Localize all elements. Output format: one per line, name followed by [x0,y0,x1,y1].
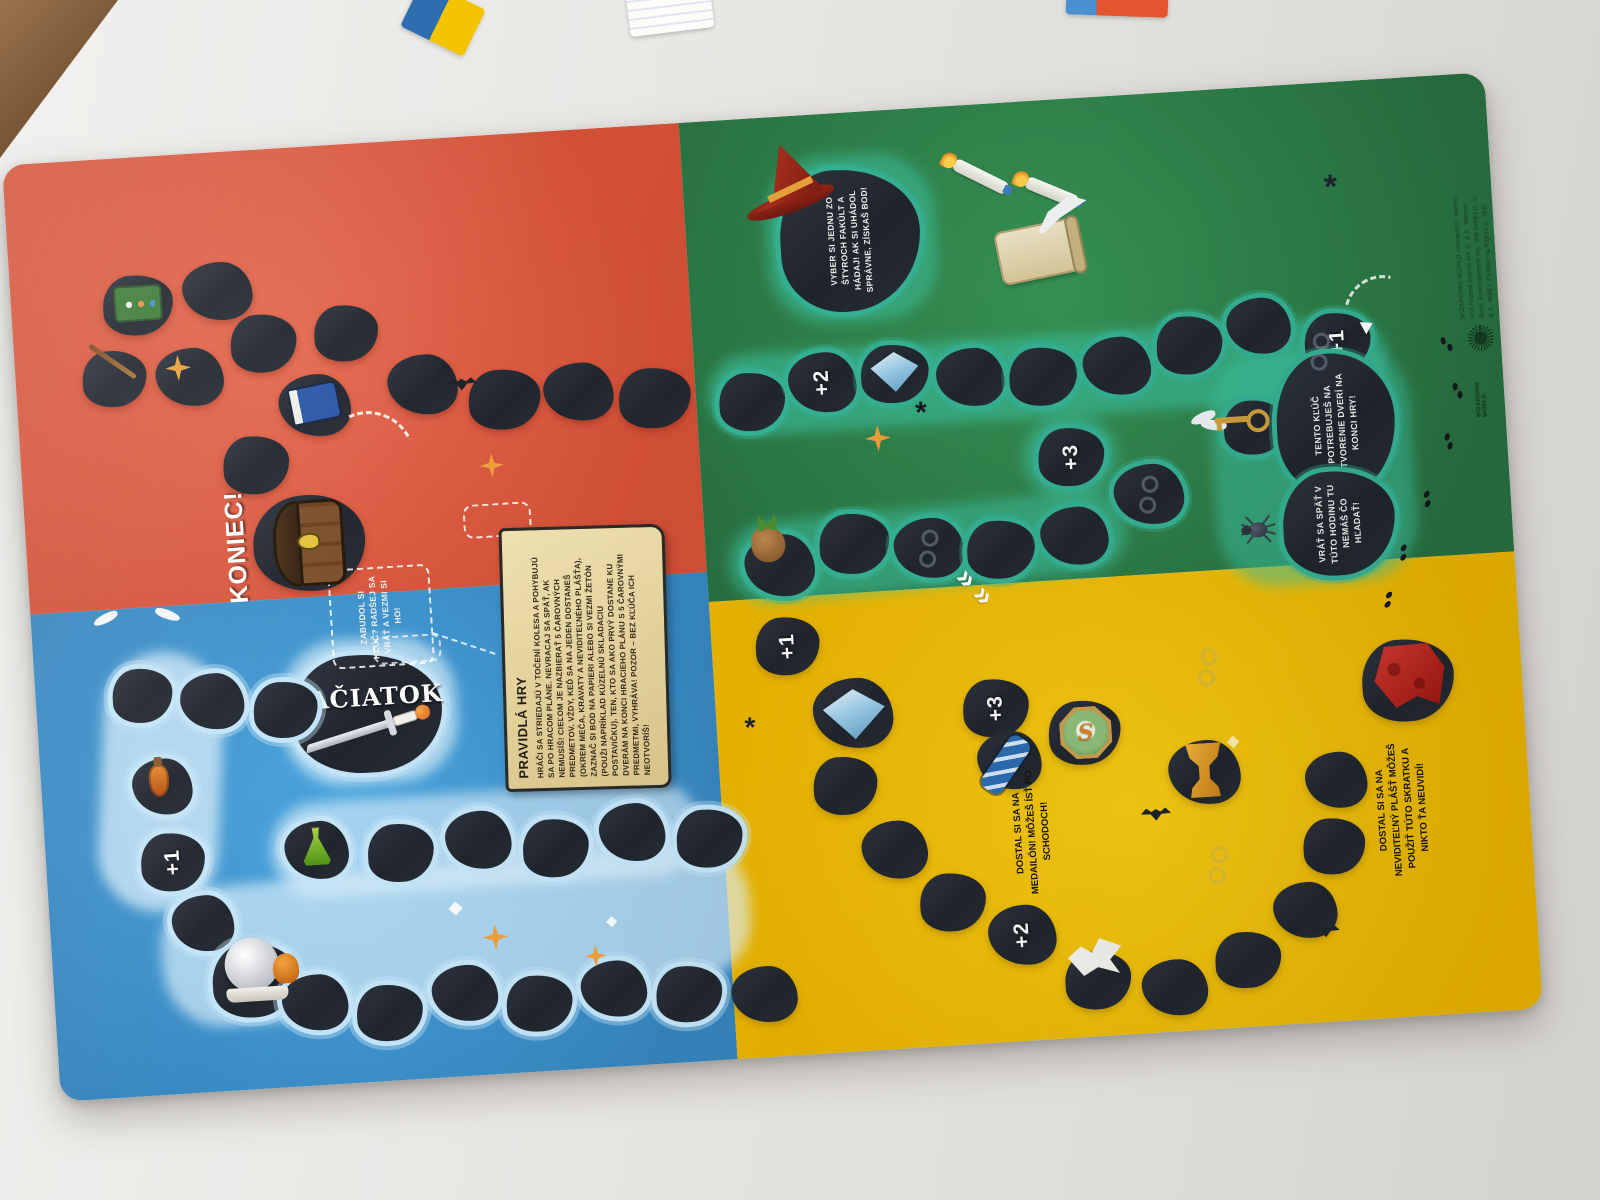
mandrake-leaf [752,513,770,533]
spider-head [1241,526,1252,536]
card-stack [400,0,486,57]
quadrant-green [679,72,1515,602]
golden-snitch-icon [108,608,166,649]
spider-icon [1245,518,1287,550]
path-glow [156,835,757,1032]
wb-logo-label: WIZARDING WORLD [1473,357,1489,418]
asterisk-star-icon: * [744,711,757,744]
arrowhead-icon [1360,317,1376,335]
path-stone [355,983,424,1043]
spider-leg [1241,523,1276,536]
path-stone [521,817,591,879]
start-label: ZAČIATOK [291,677,444,715]
potion-stone [131,757,194,817]
invisibility-cloak-icon [1371,642,1447,710]
star-icon [864,424,892,452]
path-stone [965,518,1037,580]
gem-stone [859,343,931,405]
key-wing [1189,408,1217,427]
path-stone [675,807,745,869]
wb-wizarding-world-logo [1467,324,1495,352]
ravenclaw-tie-icon [978,732,1033,797]
cloak-stone [1360,636,1457,724]
path-stone [178,671,245,731]
key-shaft [1214,416,1250,424]
mandrake-stone [743,532,817,598]
bonus-label: +2 [809,369,835,396]
path-stone [101,273,175,337]
path-stone [934,346,1006,408]
locket-face [1062,709,1109,756]
path-stone [277,372,353,438]
goblet-icon [1181,742,1228,799]
sword-grip [392,709,418,726]
glasses-icon [1308,328,1333,374]
chest-box [298,498,347,587]
path-stone [818,512,892,576]
bonus-stone-yellow-plus3: +3 [961,677,1031,739]
path-stone [252,680,319,740]
rules-card: PRAVIDLÁ HRY HRÁČI SA STRIEDAJÚ V TOČENÍ… [498,524,671,793]
mandrake-icon [750,525,786,563]
path-stone [170,894,235,954]
sparkle-icon [449,901,463,915]
path-stone [181,260,255,322]
winged-key-stone [1222,398,1287,456]
blue-book-icon [286,380,343,427]
bonus-stone-green-plus3: +3 [1037,426,1107,488]
dashed-arrow-arc [308,398,429,519]
crystal-figure [272,953,300,985]
bat-icon [1311,924,1340,939]
flask-stone [283,819,351,881]
path-glow [705,314,1389,439]
crystal-ball-stone [210,941,298,1020]
winged-key-icon [1198,405,1270,437]
sparkle-icon [1227,736,1240,749]
candle-icon [951,157,1011,195]
footprints-icon [1438,334,1454,354]
sword-pommel [413,702,432,721]
sparkle-icon [606,916,617,927]
star-icon [584,944,607,967]
diadem-gem-icon [822,687,887,741]
bonus-stone-green-plus2: +2 [786,350,858,414]
path-stone [1304,750,1369,810]
copyright-text: WIZARDING WORLD characters, names and re… [1451,193,1481,319]
owl-stone [1064,949,1134,1011]
footprints-icon [1393,542,1413,564]
rules-text-wrap: PRAVIDLÁ HRY HRÁČI SA STRIEDAJÚ V TOČENÍ… [502,527,669,789]
chevron-arrows-icon: » [948,561,985,596]
path-stone [1272,880,1339,940]
path-glow [96,649,227,914]
forgot-key-note-box: ZABUDOL SI KĽÚČ? RADŠEJ SA VRÁŤ A VEZMI … [327,564,435,670]
path-stone [366,822,436,884]
diadem-stone [811,676,895,751]
tie-stone [976,730,1044,792]
path-stone [1225,296,1292,356]
path-glow [761,149,941,327]
sword-icon [303,696,436,764]
glasses-icon [916,525,941,571]
glasses-icon [1137,471,1162,517]
key-tooth [1217,422,1222,430]
game-board: KONIEC! ZABUDOL SI KĽÚČ? RADŠEJ SA VRÁŤ … [2,72,1543,1101]
owl-icon [1067,937,1123,980]
locket-stone [1047,698,1123,766]
green-flask-icon [300,826,332,866]
asterisk-star-icon: * [914,396,928,431]
chest-lid [271,501,304,589]
path-stone [1008,346,1080,408]
end-label: KONIEC! [218,473,255,605]
bonus-label: +2 [1010,921,1036,948]
mandrake-root [750,525,786,563]
path-stone [467,367,543,431]
locket-note: DOSTAL SI SA NA MEDAILÓN! MÔŽEŠ ÍSŤ PO S… [1008,765,1058,899]
bat-icon [1141,806,1172,822]
path-stone [505,973,574,1033]
bonus-stone-blue-plus1: +1 [139,831,207,893]
winged-key-note-stone: TENTO KĽÚČ POTREBUJEŠ NA OTVORENIE DVERÍ… [1273,350,1400,499]
footprints-icon [1378,589,1399,610]
path-stone [542,361,616,423]
bonus-label: +3 [983,694,1009,721]
path-stone [718,371,788,433]
card-stack [626,0,715,37]
path-stone [597,801,667,863]
crystal-ball-icon [223,935,289,1003]
path-stone-end [250,492,368,595]
cloak-note: DOSTAL SI SA NA NEVIDITEĽNÝ PLÁŠŤ MÔŽEŠ … [1371,737,1435,880]
potion-bottle-icon [148,764,170,797]
winged-key-note: TENTO KĽÚČ POTREBUJEŠ NA OTVORENIE DVERÍ… [1308,364,1365,485]
asterisk-star-icon: * [1323,168,1339,208]
goblet-stone [1167,738,1243,806]
path-stone [229,312,299,374]
start-stone: ZAČIATOK [291,650,446,777]
snitch-stone [111,667,174,725]
path-stone [313,303,380,363]
slytherin-locket-icon: S [1058,705,1113,760]
bat-icon [446,376,477,392]
path-stone [1039,505,1111,567]
footprints-icon [1440,431,1456,451]
star-icon [482,923,510,951]
bonus-label: +1 [775,632,801,659]
sword-blade [306,718,391,753]
sorting-hat-stone: VYBER SI JEDNU ZO ŠTYROCH FAKÚLT A HÁDAJ… [776,165,925,316]
quadrant-blue [30,572,737,1102]
path-stone [1155,314,1225,376]
bonus-stone-green-end-plus1: +1 [1303,311,1373,373]
hat-cone [737,136,824,213]
bonus-label: +1 [160,848,186,875]
hat-band [767,176,813,203]
path-stone [81,349,148,409]
path-stone [444,809,514,871]
spider-note-stone: VRÁŤ SA SPÄŤ V TÚTO HODINU TU NEMÁŠ ČO H… [1280,468,1398,579]
path-stone [892,516,966,580]
path-glow [268,778,703,900]
bonus-stone-yellow-entry-plus1: +1 [754,615,822,677]
path-stone [812,755,880,817]
bonus-label: +3 [1059,443,1085,470]
potions-kit-icon [113,284,163,323]
footprints-icon [1451,381,1463,399]
chest-lock-icon [299,534,319,548]
path-glow [1020,411,1120,502]
path-stone [655,964,724,1024]
dashed-connector [432,632,495,655]
path-stone [1081,335,1153,397]
locket-letter: S [1077,719,1094,746]
quadrant-yellow [709,551,1543,1059]
path-stone [1140,958,1209,1018]
key-bow [1246,408,1270,432]
blue-gem-icon [870,350,920,393]
dashed-card-slot [372,633,442,665]
hat-brim [744,178,837,228]
glasses-icon [1206,842,1231,888]
quadrant-red [2,123,707,615]
bonus-label: +1 [1325,328,1351,355]
quill-icon [1038,193,1087,236]
chevron-arrows-icon: » [965,578,1002,613]
table-wood-corner [0,0,118,158]
key-wing [1200,419,1227,432]
spider-leg [1241,524,1276,535]
bonus-stone-yellow-plus2: +2 [987,903,1059,967]
path-stone [280,973,349,1033]
path-stone [1112,462,1186,526]
path-stone [730,964,799,1024]
mandrake-leaf [765,513,781,531]
path-stone [386,352,460,416]
sorting-hat-icon [737,132,837,224]
candle-icon [1023,176,1080,209]
star-icon [164,354,192,382]
glasses-icon [1195,644,1220,690]
path-glow [1206,343,1420,590]
spider-body [1248,522,1268,538]
spider-leg [1246,515,1270,544]
path-stone [579,959,648,1019]
path-stone [1214,930,1283,990]
footprints-icon [1417,488,1436,509]
dashed-arrow-arc [1329,260,1437,368]
treasure-chest-icon [271,498,348,588]
wand-icon [88,344,137,380]
spider-note: VRÁŤ SA SPÄŤ V TÚTO HODINU TU NEMÁŠ ČO H… [1312,478,1367,569]
crystal-base [226,985,289,1003]
photo-of-board-game: { "board": { "quadrant_colors": { "top_l… [0,0,1600,1200]
paper-corner [1066,0,1169,18]
path-stone [154,346,226,408]
scroll-quill-icon [993,217,1082,286]
path-stone [860,819,930,881]
forgot-key-note: ZABUDOL SI KĽÚČ? RADŠEJ SA VRÁŤ A VEZMI … [355,573,407,660]
glasses-icon [294,535,315,579]
path-stone [430,963,499,1023]
path-stone [617,366,693,430]
crystal-sphere [223,936,280,993]
sorting-hat-note: VYBER SI JEDNU ZO ŠTYROCH FAKÚLT A HÁDAJ… [823,180,877,301]
path-stone [918,871,988,933]
rules-title: PRAVIDLÁ HRY [510,541,532,779]
dashed-card-slot [462,501,532,539]
spider-leg [1245,516,1272,543]
path-stone [1302,816,1367,876]
star-icon [479,453,504,478]
sword-guard [383,709,398,736]
path-stone [222,434,292,496]
path-glow [725,487,1131,608]
rules-body: HRÁČI SA STRIEDAJÚ V TOČENÍ KOLESA A POH… [530,545,654,778]
path-glow [278,633,462,789]
